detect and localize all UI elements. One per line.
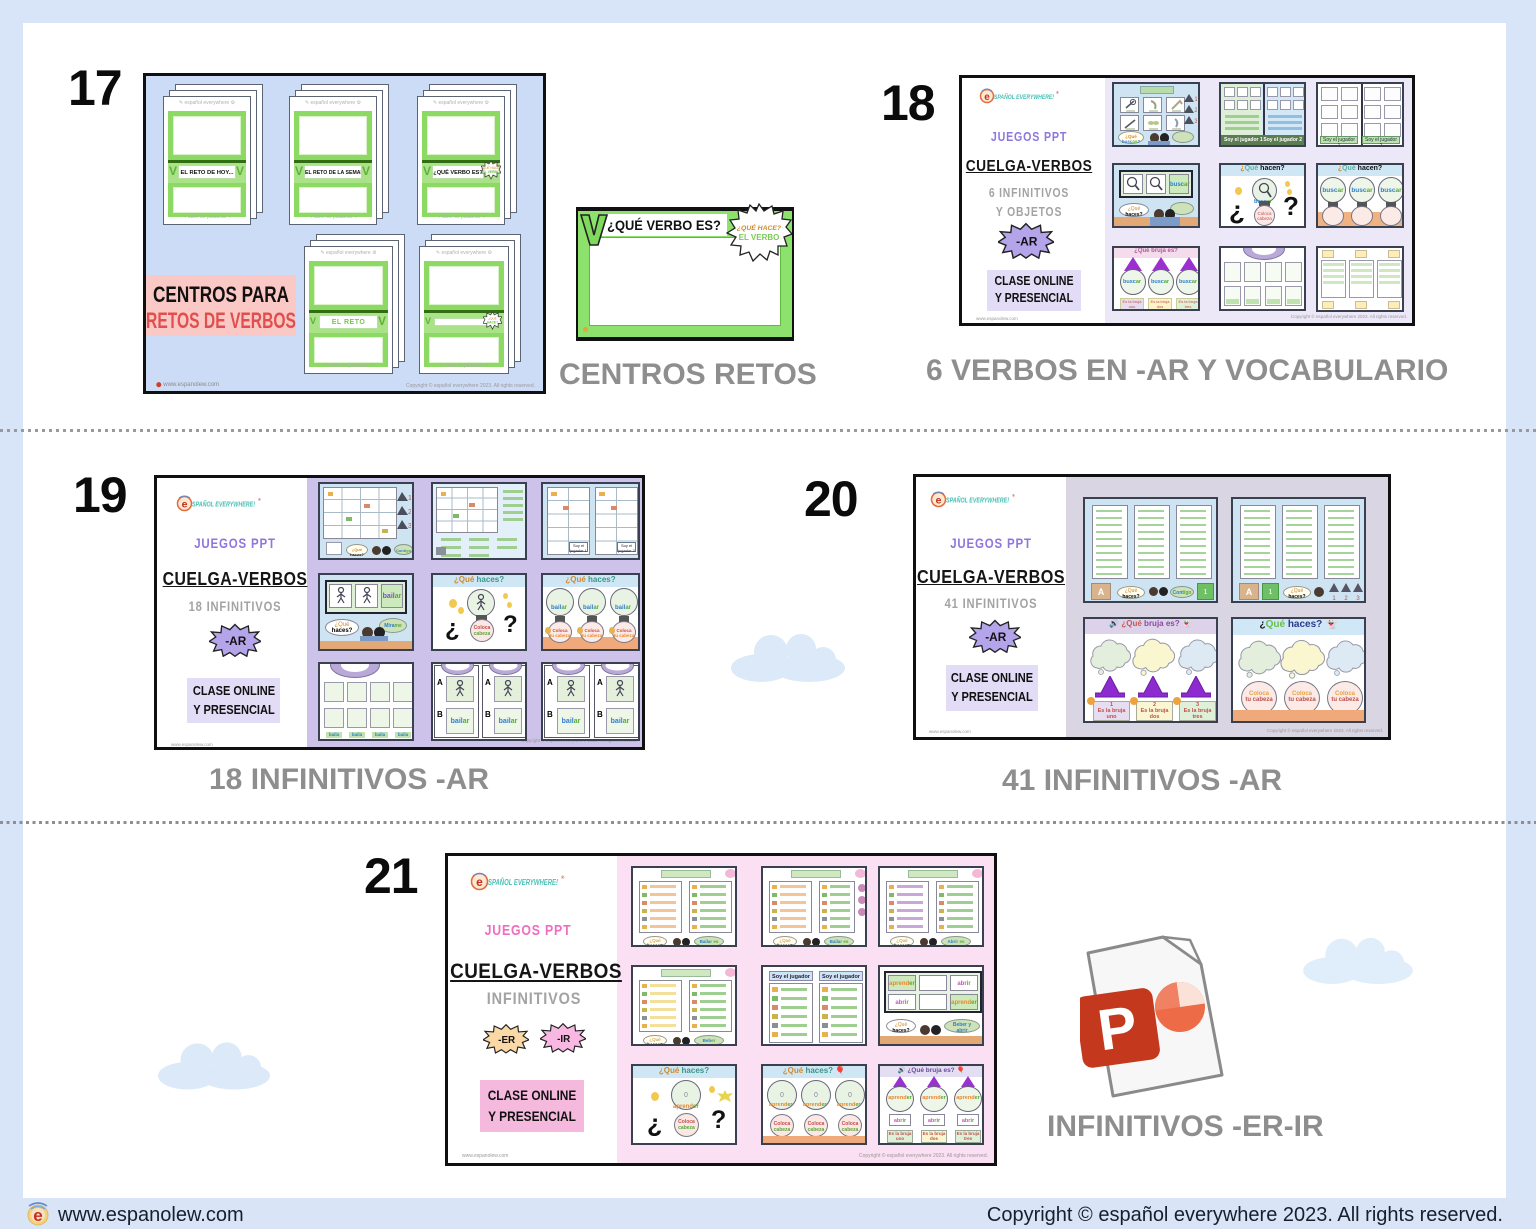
- svg-text:SPAÑOL EVERYWHERE!: SPAÑOL EVERYWHERE!: [994, 92, 1055, 101]
- svg-text:SPAÑOL EVERYWHERE!: SPAÑOL EVERYWHERE!: [192, 500, 256, 509]
- svg-text:®: ®: [1012, 493, 1015, 498]
- svg-text:-AR: -AR: [985, 630, 1006, 644]
- svg-text:®: ®: [1056, 90, 1059, 95]
- svg-text:HACE?: HACE?: [487, 320, 498, 324]
- svg-text:SPAÑOL EVERYWHERE!: SPAÑOL EVERYWHERE!: [946, 496, 1010, 505]
- svg-text:e: e: [984, 92, 990, 103]
- svg-text:3: 3: [1194, 119, 1197, 125]
- svg-text:1: 1: [1332, 596, 1336, 602]
- svg-text:e: e: [33, 1206, 42, 1225]
- svg-text:e: e: [936, 495, 942, 507]
- svg-text:3: 3: [408, 523, 411, 530]
- svg-text:e: e: [182, 499, 188, 511]
- svg-text:1: 1: [408, 495, 411, 502]
- svg-text:-IR: -IR: [557, 1034, 570, 1045]
- svg-text:3: 3: [1356, 596, 1360, 602]
- svg-text:®: ®: [258, 497, 261, 502]
- svg-text:e: e: [476, 875, 483, 889]
- svg-text:2: 2: [1344, 596, 1348, 602]
- svg-text:EL VERBO: EL VERBO: [482, 170, 500, 174]
- svg-text:SPAÑOL EVERYWHERE!: SPAÑOL EVERYWHERE!: [488, 878, 558, 887]
- svg-text:1: 1: [1194, 97, 1197, 103]
- svg-text:2: 2: [1194, 108, 1197, 114]
- svg-text:2: 2: [408, 509, 411, 516]
- svg-text:¿QUÉ HACE?: ¿QUÉ HACE?: [737, 223, 782, 232]
- svg-text:®: ®: [561, 874, 565, 880]
- svg-text:EL VERBO: EL VERBO: [739, 233, 780, 242]
- svg-text:-AR: -AR: [225, 634, 246, 648]
- svg-text:-ER: -ER: [498, 1035, 515, 1046]
- svg-text:-AR: -AR: [1016, 234, 1038, 248]
